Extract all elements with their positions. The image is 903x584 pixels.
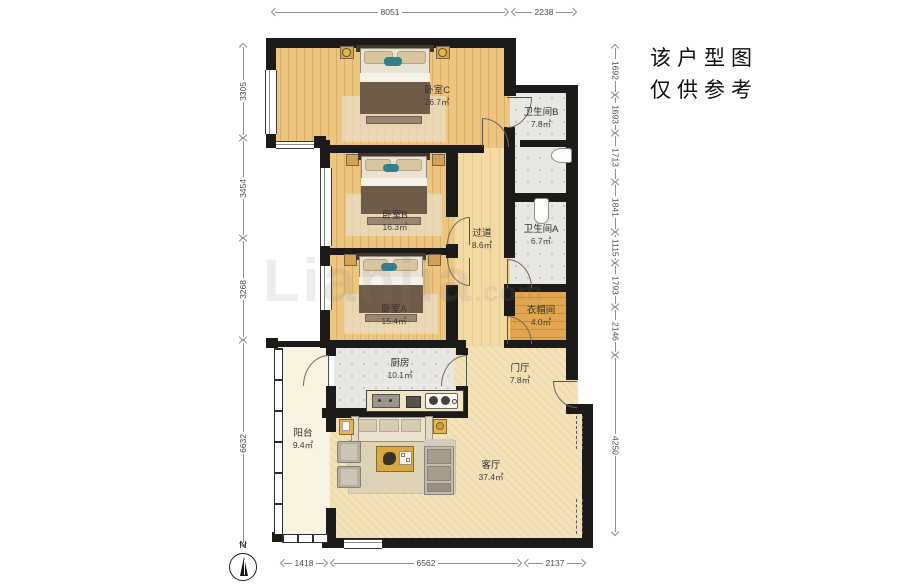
wall <box>446 153 458 217</box>
wall <box>326 340 336 356</box>
room-label-bathroom-a: 卫生间A 6.7㎡ <box>509 224 573 247</box>
dimension-value: 8051 <box>378 8 403 17</box>
room-name: 门厅 <box>488 363 552 375</box>
window <box>344 539 382 549</box>
dimension-value: 2137 <box>543 559 568 568</box>
room-area: 9.4㎡ <box>279 440 327 451</box>
wall <box>320 340 466 348</box>
north-compass: N <box>228 540 258 584</box>
sofa-cushion <box>401 419 421 432</box>
bed-sheet <box>361 178 427 186</box>
room-label-kitchen: 厨房 10.1㎡ <box>363 358 437 381</box>
dimension-right-5: 1115 <box>609 232 621 263</box>
dimension-value: 3454 <box>239 177 248 200</box>
room-area: 4.0㎡ <box>509 317 573 328</box>
dimension-value: 1841 <box>611 196 620 219</box>
room-name: 客厅 <box>453 460 529 472</box>
sofa-cushion <box>379 419 399 432</box>
ceiling-beam-dashed <box>576 499 583 534</box>
dimension-bottom-1: 1418 <box>281 557 327 569</box>
pillow <box>396 159 422 171</box>
chaise-cushion <box>427 449 451 464</box>
table-decor <box>383 452 396 465</box>
armchair-seat <box>341 469 357 485</box>
dimension-right-3: 1713 <box>609 133 621 182</box>
room-area: 15.4㎡ <box>356 316 432 327</box>
dimension-value: 3268 <box>239 278 248 301</box>
window <box>276 141 314 149</box>
dimension-value: 2238 <box>532 8 557 17</box>
dimension-value: 1418 <box>292 559 317 568</box>
room-label-bedroom-b: 卧室B 16.3㎡ <box>358 210 432 233</box>
room-area: 6.7㎡ <box>509 236 573 247</box>
north-arrow-highlight <box>244 560 245 575</box>
pillow-accent <box>384 57 402 66</box>
room-area: 10.1㎡ <box>363 370 437 381</box>
room-area: 7.8㎡ <box>488 375 552 386</box>
dimension-top-2: 2238 <box>512 6 576 18</box>
room-name: 阳台 <box>279 428 327 440</box>
kitchen-appliance <box>406 396 421 408</box>
dimension-bottom-3: 2137 <box>525 557 585 569</box>
balcony-glazing <box>282 534 328 543</box>
room-area: 26.7㎡ <box>399 97 475 108</box>
side-table-item <box>436 422 444 430</box>
room-name: 卧室C <box>399 85 475 97</box>
room-name: 卫生间B <box>509 107 573 119</box>
disclaimer-line1: 该户型图 <box>650 42 810 74</box>
burner-icon <box>452 399 457 404</box>
wall <box>582 404 593 548</box>
bed-bench <box>366 116 422 124</box>
room-area: 16.3㎡ <box>358 222 432 233</box>
chaise-cushion <box>427 466 451 481</box>
dimension-left-2: 3454 <box>237 138 249 238</box>
room-name: 过道 <box>456 228 508 240</box>
kitchen-sink <box>372 394 400 408</box>
room-name: 卫生间A <box>509 224 573 236</box>
wall <box>326 386 336 432</box>
dimension-left-3: 3268 <box>237 238 249 340</box>
disclaimer-text: 该户型图 仅供参考 <box>650 42 810 106</box>
north-label: N <box>228 540 258 551</box>
wall-stub <box>520 140 572 147</box>
lamp-icon <box>342 48 351 57</box>
room-label-bathroom-b: 卫生间B 7.8㎡ <box>509 107 573 130</box>
dimension-left-4: 6632 <box>237 340 249 546</box>
burner-icon <box>441 396 450 405</box>
tray-item <box>401 453 405 457</box>
dimension-value: 6632 <box>239 432 248 455</box>
dimension-right-1: 1692 <box>609 45 621 95</box>
room-area: 37.4㎡ <box>453 472 529 483</box>
watermark-main: Lianjia <box>263 247 474 314</box>
watermark: Lianjia.com <box>263 246 543 315</box>
dimension-right-2: 1693 <box>609 95 621 133</box>
wall <box>266 136 276 148</box>
tray-item <box>406 458 410 462</box>
wall <box>456 348 468 355</box>
room-label-bedroom-c: 卧室C 26.7㎡ <box>399 85 475 108</box>
watermark-suffix: .com <box>474 276 543 307</box>
dimension-value: 1693 <box>611 103 620 126</box>
dimension-value: 3305 <box>239 80 248 103</box>
wall <box>320 145 484 153</box>
chaise-cushion <box>427 483 451 492</box>
room-name: 厨房 <box>363 358 437 370</box>
room-label-foyer: 门厅 7.8㎡ <box>488 363 552 386</box>
burner-icon <box>429 396 438 405</box>
dimension-top-1: 8051 <box>272 6 508 18</box>
dimension-value: 1793 <box>611 274 620 297</box>
ceiling-beam-dashed <box>576 416 583 449</box>
window <box>320 168 332 246</box>
pillow-accent <box>383 164 399 172</box>
dimension-value: 1713 <box>611 146 620 169</box>
dimension-value: 2146 <box>611 320 620 343</box>
floorplan-page: 卧室C 26.7㎡ 卫生间B 7.8㎡ 卧室B 16.3㎡ 过道 8.6㎡ 卫生… <box>0 0 903 584</box>
room-label-living: 客厅 37.4㎡ <box>453 460 529 483</box>
compass-circle-icon <box>229 553 257 581</box>
dimension-value: 4250 <box>611 434 620 457</box>
nightstand <box>432 154 445 166</box>
dimension-left-1: 3305 <box>237 44 249 138</box>
kitchen-sink-dot <box>389 399 392 402</box>
sink <box>534 198 549 224</box>
chaise-arm <box>424 439 454 447</box>
dimension-value: 6562 <box>414 559 439 568</box>
kitchen-sink-dot <box>378 399 381 402</box>
side-table-item <box>342 421 350 431</box>
window <box>265 70 277 134</box>
armchair-seat <box>341 444 357 460</box>
dimension-right-8: 4250 <box>609 355 621 535</box>
room-area: 7.8㎡ <box>509 119 573 130</box>
lamp-icon <box>438 48 447 57</box>
room-label-balcony: 阳台 9.4㎡ <box>279 428 327 451</box>
bed-sheet <box>360 73 430 82</box>
dimension-bottom-2: 6562 <box>331 557 521 569</box>
dimension-right-4: 1841 <box>609 182 621 232</box>
wall <box>276 341 332 347</box>
dimension-value: 1692 <box>611 59 620 82</box>
sofa-cushion <box>357 419 377 432</box>
room-name: 卧室B <box>358 210 432 222</box>
disclaimer-line2: 仅供参考 <box>650 74 810 106</box>
dimension-right-7: 2146 <box>609 307 621 355</box>
toilet <box>551 148 572 163</box>
dimension-right-6: 1793 <box>609 263 621 307</box>
